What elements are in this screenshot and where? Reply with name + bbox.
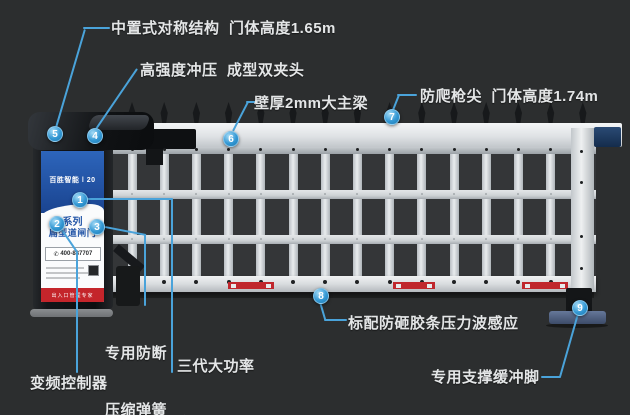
callout-circle-1: 1: [72, 192, 88, 208]
leader-line: [144, 234, 146, 306]
rivet-dot: [260, 193, 262, 195]
screw-dot: [580, 181, 583, 184]
fence-bar: [224, 147, 233, 277]
fence-bar: [353, 147, 362, 277]
clamp-bracket: [146, 149, 163, 165]
rivet-dot: [195, 148, 198, 151]
fine-print-line: [46, 267, 84, 269]
rivet-dot: [453, 148, 456, 151]
leader-line: [171, 199, 173, 373]
rivet-dot: [453, 193, 455, 195]
fence-bar: [514, 147, 523, 277]
fence-bar: [256, 147, 265, 277]
tagline-banner: 出入口管理专家: [41, 288, 104, 302]
rivet-dot: [324, 148, 327, 151]
screw-dot: [580, 150, 583, 153]
phone-icon: ✆: [54, 251, 59, 258]
screw-dot: [580, 235, 583, 238]
callout-circle-6: 6: [223, 131, 239, 147]
fence-bar: [482, 147, 491, 277]
fence-bar: [417, 147, 426, 277]
rivet-dot: [550, 193, 552, 195]
rivet-dot: [292, 148, 295, 151]
rivet-dot: [421, 193, 423, 195]
label-main-beam-thickness: 壁厚2mm大主梁: [254, 94, 368, 113]
label-support-buffer-foot: 专用支撑缓冲脚: [431, 368, 540, 387]
leader-line: [86, 198, 173, 200]
callout-circle-9: 9: [572, 300, 588, 316]
fence-bar: [192, 147, 201, 277]
label-inverter-core: 三代大功率 变频机芯: [177, 319, 255, 415]
rivet-dot: [485, 148, 488, 151]
fence-bar: [546, 147, 555, 277]
screw-dot: [580, 267, 583, 270]
fence-bar: [289, 147, 298, 277]
label-anti-smash-sensor: 标配防砸胶条压力波感应: [348, 314, 519, 333]
rivet-dot: [228, 238, 230, 240]
mid-rail-2: [112, 235, 596, 244]
rivet-dot: [260, 238, 262, 240]
label-stamped-clamp-head: 高强度冲压 成型双夹头: [140, 61, 304, 80]
leader-line: [541, 376, 561, 378]
label-symmetric-structure: 中置式对称结构 门体高度1.65m: [111, 19, 336, 38]
spring-bracket: [116, 266, 140, 306]
fence-bar: [321, 147, 330, 277]
reflective-strip: [228, 282, 274, 289]
rivet-dot: [292, 238, 294, 240]
label-anti-climb-spikes: 防爬枪尖 门体高度1.74m: [420, 87, 598, 106]
qr-code: [88, 265, 99, 276]
label-anti-break-spring: 专用防断 压缩弹簧: [105, 306, 167, 415]
callout-circle-7: 7: [384, 109, 400, 125]
rivet-dot: [388, 280, 392, 284]
rivet-dot: [452, 280, 456, 284]
rivet-dot: [389, 238, 391, 240]
rivet-dot: [228, 193, 230, 195]
beam-end-cap: [594, 127, 621, 147]
rivet-dot: [163, 148, 166, 151]
ground-shadow: [30, 309, 113, 317]
leader-line: [83, 27, 110, 29]
leader-line: [76, 251, 78, 373]
rivet-dot: [291, 280, 295, 284]
scene: 百胜智能 ǀ 20 系列 扁型道闸门 ✆ 400-887707 出入口管理专家 …: [0, 0, 630, 415]
callout-circle-2: 2: [49, 216, 65, 232]
mid-rail-1: [112, 190, 596, 199]
leader-line: [392, 94, 400, 111]
callout-circle-5: 5: [47, 126, 63, 142]
reflective-strip: [393, 282, 435, 289]
rivet-dot: [292, 193, 294, 195]
callout-circle-8: 8: [313, 288, 329, 304]
callout-circle-3: 3: [89, 219, 105, 235]
leader-line: [319, 302, 326, 321]
fence-bar: [450, 147, 459, 277]
leader-line: [397, 94, 417, 96]
rivet-dot: [389, 193, 391, 195]
leader-line: [324, 319, 347, 321]
rivet-dot: [421, 238, 423, 240]
fence-bar: [385, 147, 394, 277]
rivet-dot: [131, 193, 133, 195]
fence-bar: [160, 147, 169, 277]
gate-shadow: [112, 292, 594, 298]
fine-print-line: [46, 277, 80, 279]
rivet-dot: [131, 238, 133, 240]
fine-print-line: [46, 272, 88, 274]
label-inverter-controller: 变频控制器: [30, 374, 108, 393]
rivet-dot: [453, 238, 455, 240]
rivet-dot: [517, 148, 520, 151]
reflective-strip: [522, 282, 568, 289]
rivet-dot: [356, 148, 359, 151]
rivet-dot: [550, 238, 552, 240]
callout-circle-4: 4: [87, 128, 103, 144]
brand-logo: 百胜智能 ǀ 20: [41, 175, 104, 185]
